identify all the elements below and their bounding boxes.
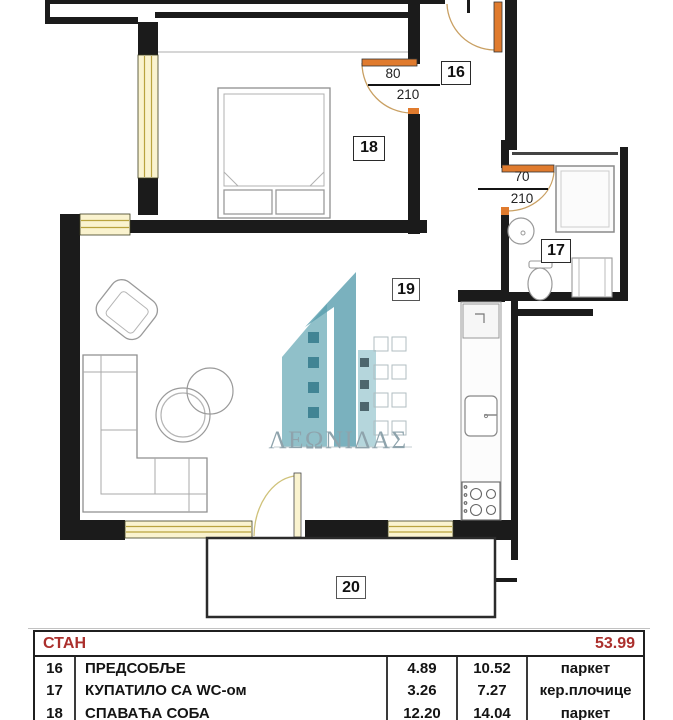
kitchen-sink — [465, 396, 497, 436]
entrance-door — [447, 2, 502, 52]
stove — [462, 482, 500, 520]
cell-room-number: 16 — [35, 657, 74, 680]
cell-room-number: 18 — [35, 702, 74, 720]
room-label-hall: 16 — [441, 61, 471, 85]
area-table-body: 16 ПРЕДСОБЉЕ 4.89 10.52 паркет 17 КУПАТИ… — [33, 657, 645, 720]
table-row: 16 ПРЕДСОБЉЕ 4.89 10.52 паркет — [35, 657, 643, 680]
bathroom-cabinet — [572, 258, 612, 297]
cell-flooring: паркет — [526, 657, 643, 680]
room-label-bath: 17 — [541, 239, 571, 263]
room-label-bedroom: 18 — [353, 136, 385, 161]
cell-room-number: 17 — [35, 680, 74, 703]
kitchen-counter — [461, 302, 501, 520]
armchair — [91, 275, 162, 344]
floor-plan-drawing: ΛΕΩΝΙΔΑΣ — [0, 0, 673, 628]
cell-area: 12.20 — [386, 702, 456, 720]
living-bottom-window-1 — [125, 521, 252, 538]
bathroom-sink — [508, 218, 534, 244]
cell-flooring: кер.плочице — [526, 680, 643, 703]
coffee-tables — [156, 368, 233, 442]
cell-area2: 7.27 — [456, 680, 526, 703]
table-row: 17 КУПАТИЛО СА WC-ом 3.26 7.27 кер.плочи… — [35, 680, 643, 703]
cell-room-name: КУПАТИЛО СА WC-ом — [74, 680, 386, 703]
apartment-label: СТАН — [43, 635, 86, 653]
sofa — [83, 355, 207, 512]
cell-room-name: СПАВАЋА СОБА — [74, 702, 386, 720]
cell-area2: 14.04 — [456, 702, 526, 720]
cell-area: 4.89 — [386, 657, 456, 680]
living-left-window — [80, 214, 130, 235]
shower — [556, 166, 614, 232]
bedroom-window — [138, 55, 158, 178]
bed — [218, 88, 330, 218]
dim-bath-door-width: 70 — [505, 169, 539, 184]
dim-bedroom-door-width: 80 — [378, 66, 408, 81]
cell-area: 3.26 — [386, 680, 456, 703]
bathroom-fixtures — [508, 166, 614, 300]
cell-flooring: паркет — [526, 702, 643, 720]
toilet — [528, 268, 552, 300]
floor-plan-page: ΛΕΩΝΙΔΑΣ — [0, 0, 673, 720]
watermark-logo: ΛΕΩΝΙΔΑΣ — [268, 272, 412, 454]
table-top-hairline — [28, 628, 650, 629]
room-label-terrace: 20 — [336, 576, 366, 599]
cell-room-name: ПРЕДСОБЉЕ — [74, 657, 386, 680]
watermark-text: ΛΕΩΝΙΔΑΣ — [268, 427, 407, 454]
table-row: 18 СПАВАЋА СОБА 12.20 14.04 паркет — [35, 702, 643, 720]
balcony-door — [254, 473, 301, 537]
room-label-living: 19 — [392, 278, 420, 301]
area-table-header: СТАН 53.99 — [33, 630, 645, 657]
fridge — [463, 304, 499, 338]
dim-bath-door-height: 210 — [502, 191, 542, 206]
apartment-total-area: 53.99 — [595, 635, 635, 653]
living-bottom-window-2 — [388, 521, 453, 538]
dim-bedroom-door-height: 210 — [388, 87, 428, 102]
cell-area2: 10.52 — [456, 657, 526, 680]
area-table: СТАН 53.99 16 ПРЕДСОБЉЕ 4.89 10.52 парке… — [33, 630, 645, 720]
